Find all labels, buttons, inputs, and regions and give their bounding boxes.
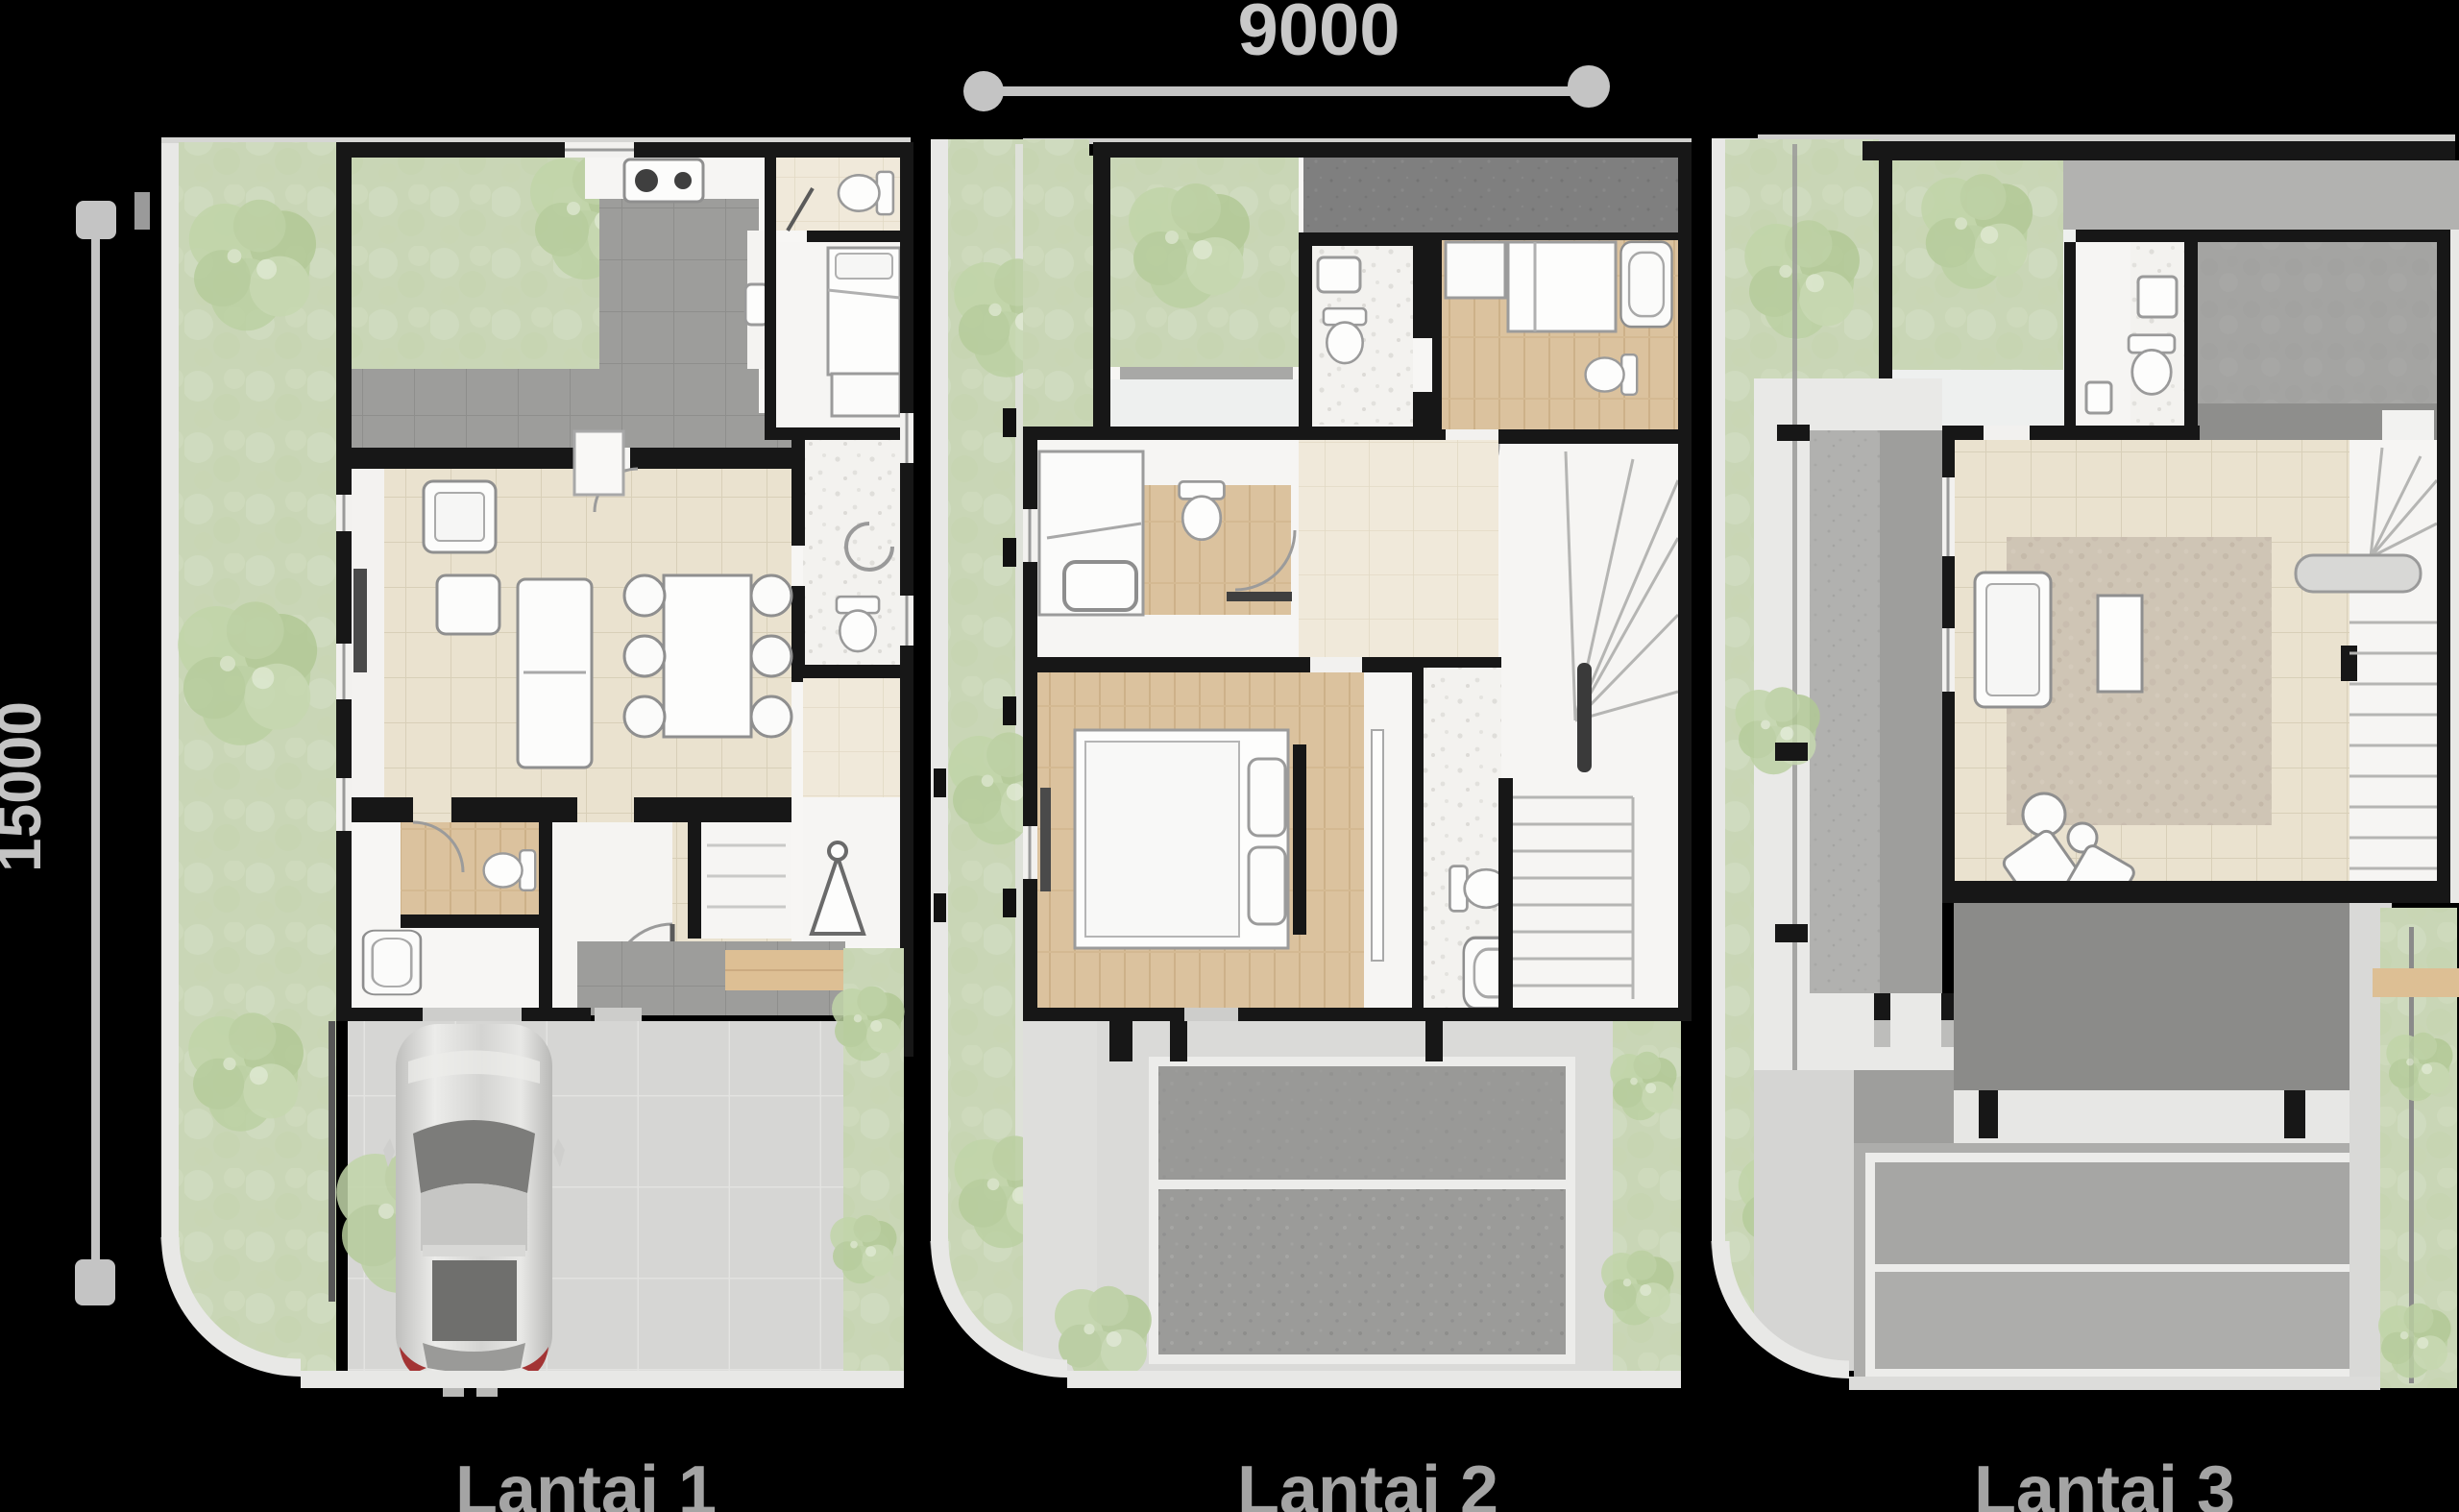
svg-text:9000: 9000 (1237, 0, 1400, 71)
svg-text:15000: 15000 (0, 701, 54, 872)
svg-text:Lantai 1: Lantai 1 (455, 1452, 717, 1512)
svg-text:Lantai 3: Lantai 3 (1974, 1452, 2235, 1512)
svg-text:Lantai 2: Lantai 2 (1237, 1452, 1498, 1512)
